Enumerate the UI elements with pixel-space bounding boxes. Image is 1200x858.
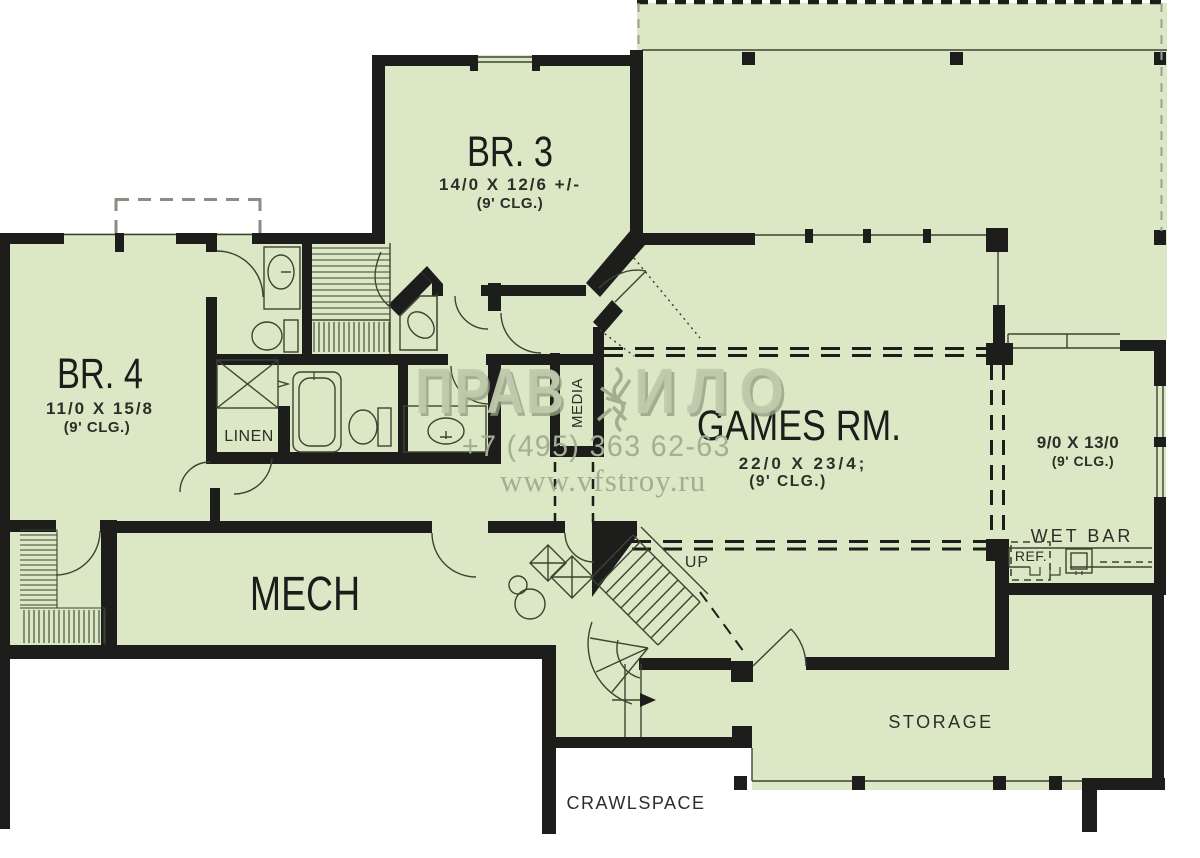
svg-text:BR. 4: BR. 4 bbox=[57, 350, 143, 397]
svg-text:22/0 X 23/4;: 22/0 X 23/4; bbox=[739, 454, 868, 473]
svg-text:(9' CLG.): (9' CLG.) bbox=[64, 419, 130, 436]
svg-text:STORAGE: STORAGE bbox=[888, 712, 993, 732]
svg-text:WET BAR: WET BAR bbox=[1031, 526, 1134, 546]
svg-text:ПРАВ: ПРАВ bbox=[415, 356, 565, 427]
svg-text:BR. 3: BR. 3 bbox=[467, 128, 553, 175]
svg-text:(9' CLG.): (9' CLG.) bbox=[477, 195, 543, 212]
svg-text:(9' CLG.): (9' CLG.) bbox=[749, 473, 826, 490]
svg-text:CRAWLSPACE: CRAWLSPACE bbox=[566, 793, 705, 813]
svg-text:LINEN: LINEN bbox=[224, 428, 274, 445]
svg-text:www.vfstroy.ru: www.vfstroy.ru bbox=[500, 463, 706, 498]
svg-text:REF.: REF. bbox=[1015, 548, 1047, 564]
svg-text:(9' CLG.): (9' CLG.) bbox=[1052, 453, 1114, 469]
svg-text:11/0 X 15/8: 11/0 X 15/8 bbox=[46, 399, 154, 418]
svg-text:ИЛО: ИЛО bbox=[634, 355, 796, 426]
svg-text:9/0 X 13/0: 9/0 X 13/0 bbox=[1037, 433, 1120, 452]
svg-text:MEDIA: MEDIA bbox=[569, 378, 586, 428]
svg-text:UP: UP bbox=[685, 554, 709, 571]
svg-text:14/0 X 12/6 +/-: 14/0 X 12/6 +/- bbox=[439, 175, 581, 194]
svg-text:+7 (495) 363 62-63: +7 (495) 363 62-63 bbox=[462, 430, 731, 463]
svg-text:MECH: MECH bbox=[250, 568, 360, 622]
